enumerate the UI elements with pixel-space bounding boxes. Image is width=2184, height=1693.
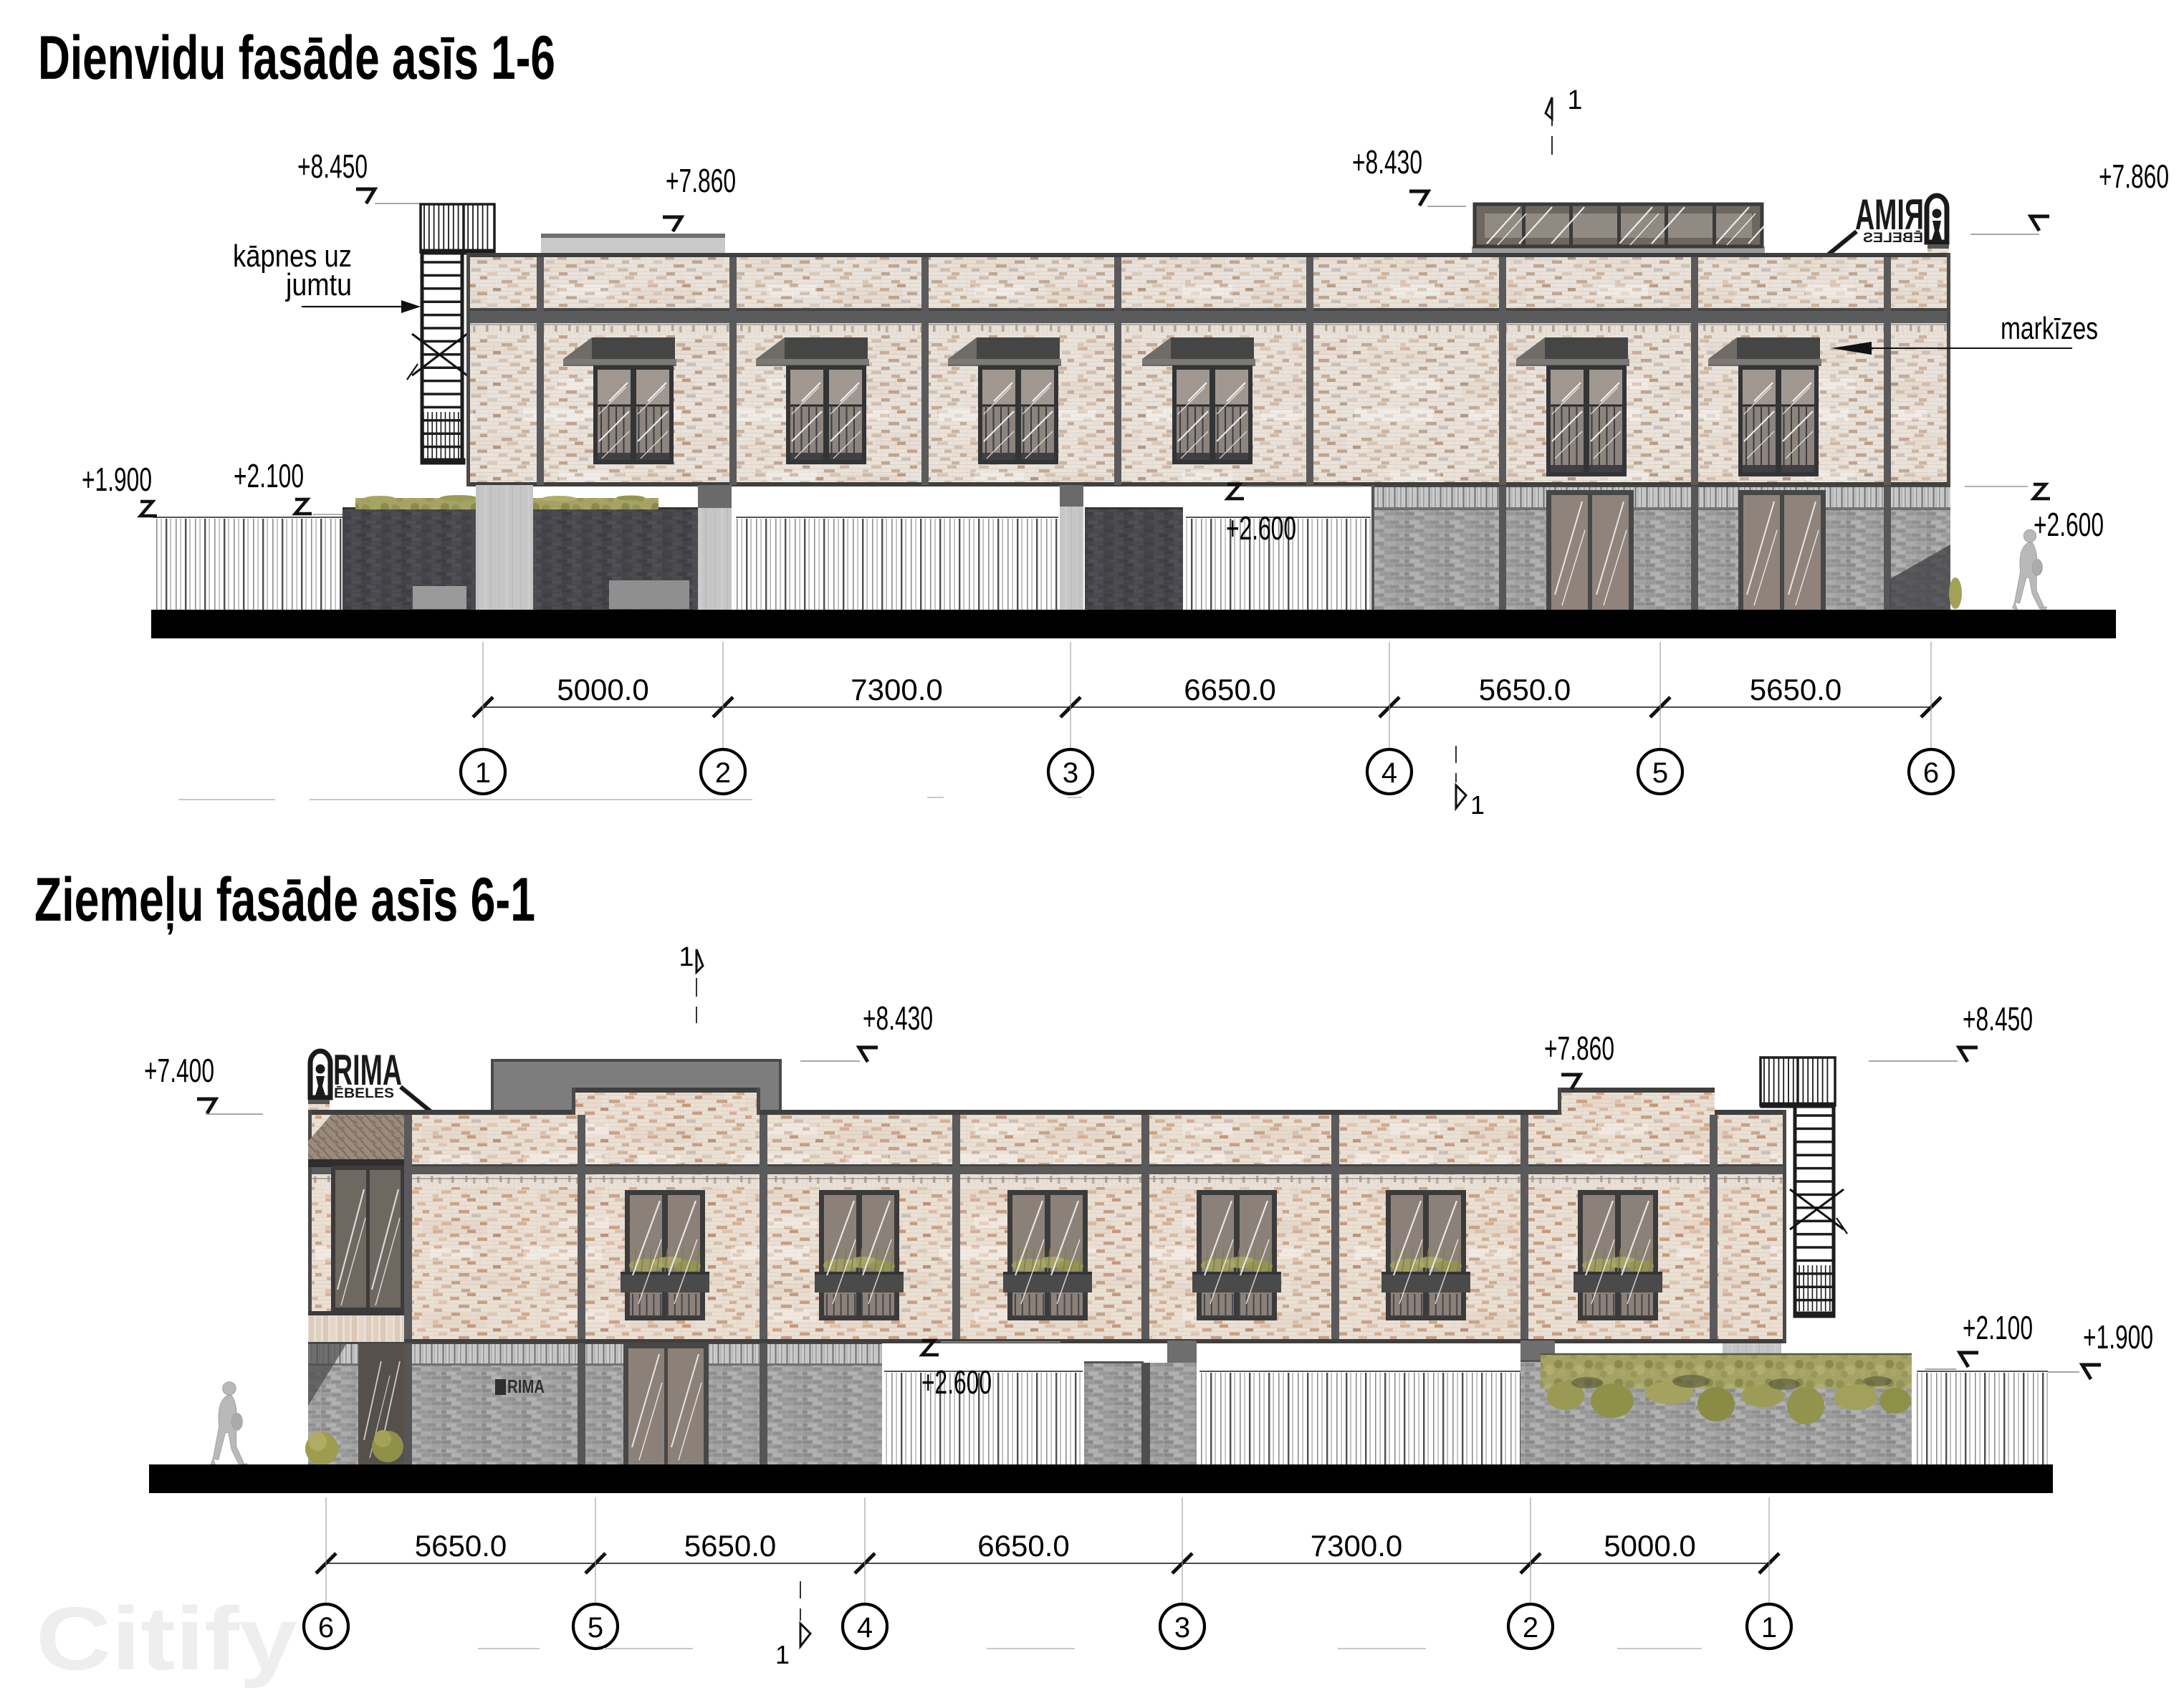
svg-text:+8.450: +8.450 — [297, 148, 368, 185]
svg-text:+7.860: +7.860 — [666, 162, 736, 199]
svg-text:5: 5 — [1652, 757, 1668, 789]
svg-text:+7.400: +7.400 — [144, 1052, 214, 1089]
svg-text:4: 4 — [857, 1612, 873, 1644]
svg-text:ĒBELES: ĒBELES — [334, 1086, 394, 1101]
svg-text:+2.600: +2.600 — [2034, 506, 2104, 543]
svg-text:6: 6 — [1923, 757, 1939, 789]
svg-text:3: 3 — [1063, 757, 1078, 789]
svg-text:Ziemeļu fasāde asīs 6-1: Ziemeļu fasāde asīs 6-1 — [34, 865, 535, 934]
svg-text:+1.900: +1.900 — [2083, 1318, 2153, 1356]
svg-text:4: 4 — [1381, 757, 1397, 789]
svg-text:+1.900: +1.900 — [82, 461, 152, 498]
svg-text:5650.0: 5650.0 — [1479, 673, 1571, 706]
svg-text:5: 5 — [588, 1612, 603, 1644]
svg-text:RIMA: RIMA — [507, 1376, 545, 1397]
svg-text:2: 2 — [715, 757, 731, 789]
svg-text:5650.0: 5650.0 — [415, 1529, 507, 1563]
svg-text:Citify: Citify — [36, 1589, 297, 1689]
svg-text:+2.600: +2.600 — [921, 1363, 992, 1401]
svg-text:1: 1 — [475, 757, 491, 789]
svg-text:+2.600: +2.600 — [1226, 509, 1296, 547]
svg-text:markīzes: markīzes — [2001, 311, 2098, 346]
svg-text:+8.430: +8.430 — [863, 999, 933, 1037]
svg-text:+7.860: +7.860 — [1544, 1030, 1614, 1067]
svg-text:3: 3 — [1174, 1612, 1190, 1644]
svg-text:5000.0: 5000.0 — [1604, 1529, 1695, 1563]
svg-text:1: 1 — [1567, 85, 1582, 115]
svg-text:1: 1 — [1761, 1612, 1777, 1644]
svg-text:+8.450: +8.450 — [1963, 1000, 2033, 1037]
svg-text:6650.0: 6650.0 — [1184, 673, 1275, 706]
svg-text:+7.860: +7.860 — [2099, 158, 2169, 195]
svg-text:ĒBELES: ĒBELES — [1863, 231, 1923, 246]
svg-text:jumtu: jumtu — [284, 267, 352, 302]
svg-text:2: 2 — [1523, 1612, 1538, 1644]
svg-text:+2.100: +2.100 — [234, 457, 304, 494]
svg-text:7300.0: 7300.0 — [851, 673, 942, 706]
svg-text:1: 1 — [1470, 790, 1485, 820]
svg-text:7300.0: 7300.0 — [1311, 1529, 1402, 1563]
svg-text:1: 1 — [679, 942, 694, 972]
svg-text:5650.0: 5650.0 — [1750, 673, 1841, 706]
svg-text:6650.0: 6650.0 — [977, 1529, 1069, 1563]
svg-text:+2.100: +2.100 — [1963, 1309, 2033, 1346]
svg-text:1: 1 — [775, 1640, 790, 1669]
svg-text:5000.0: 5000.0 — [557, 673, 648, 706]
svg-text:+8.430: +8.430 — [1352, 143, 1422, 181]
svg-text:5650.0: 5650.0 — [684, 1529, 776, 1563]
svg-text:Dienvidu fasāde asīs 1-6: Dienvidu fasāde asīs 1-6 — [38, 24, 555, 92]
svg-text:6: 6 — [318, 1612, 334, 1644]
